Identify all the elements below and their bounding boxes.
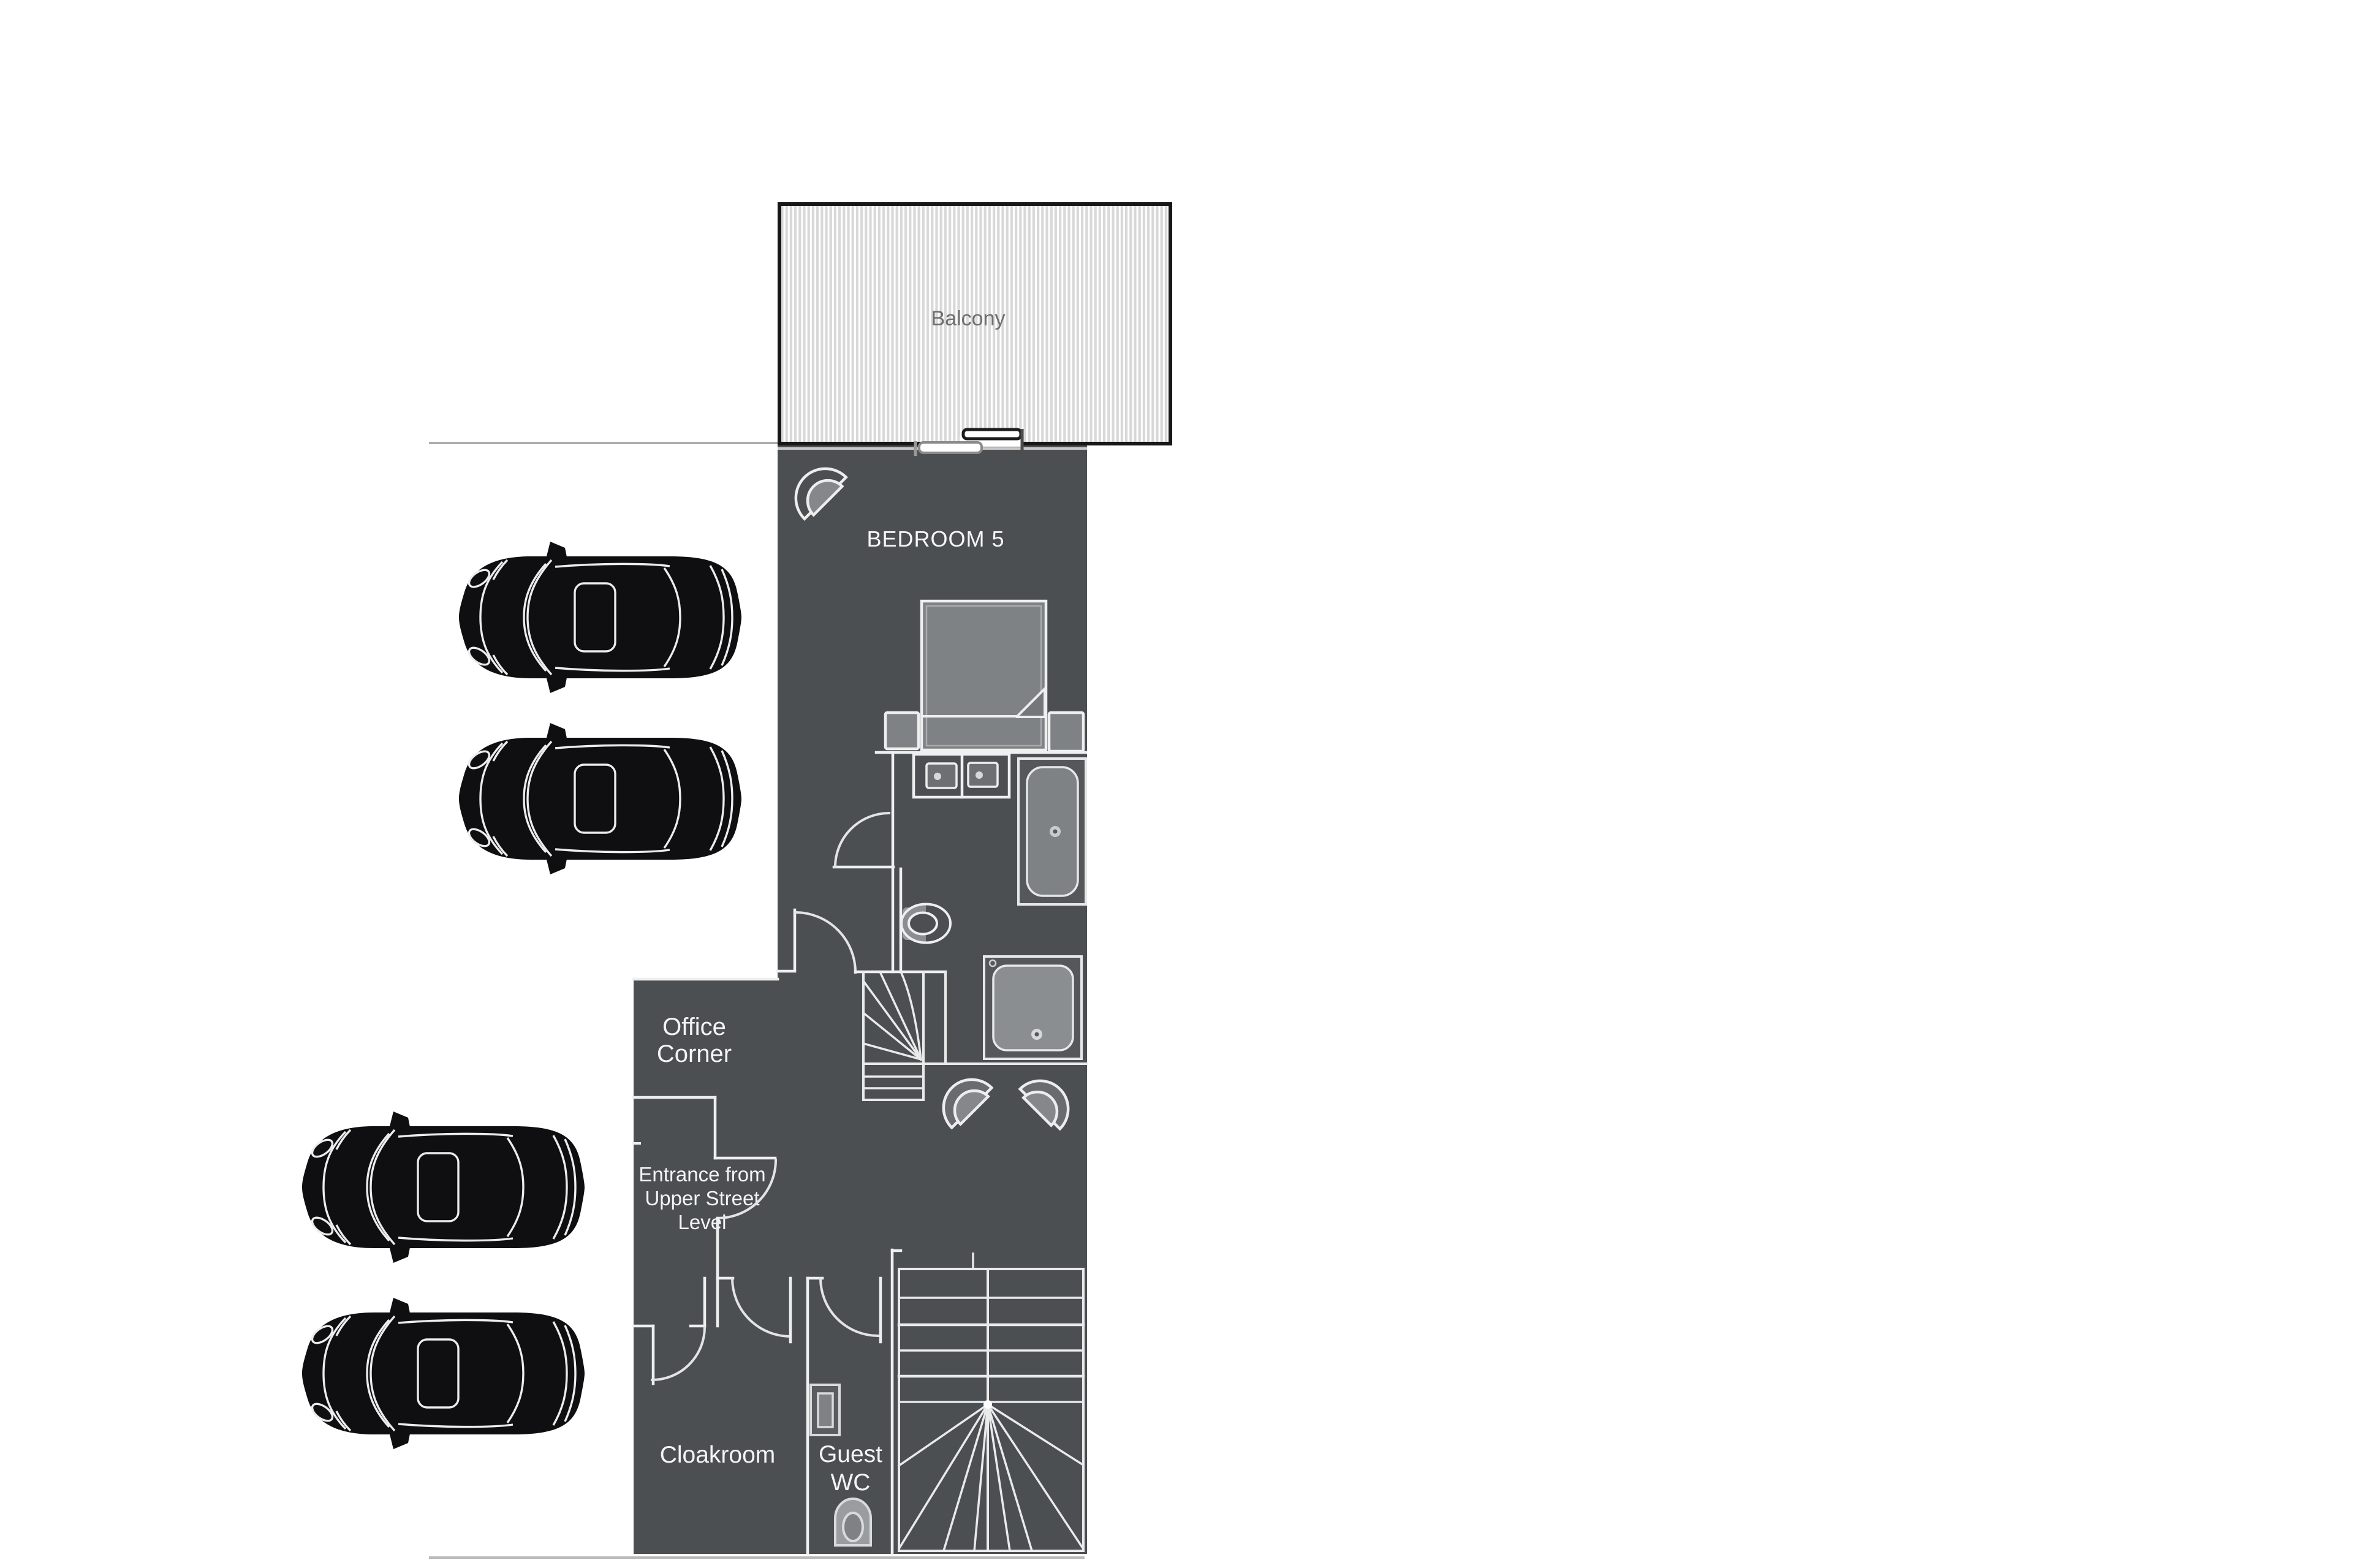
svg-text:Level: Level <box>678 1211 727 1233</box>
svg-text:Corner: Corner <box>657 1040 732 1067</box>
svg-text:WC: WC <box>831 1469 871 1496</box>
svg-text:Guest: Guest <box>819 1441 882 1468</box>
svg-text:Balcony: Balcony <box>931 307 1006 330</box>
svg-text:BEDROOM 5: BEDROOM 5 <box>866 526 1004 551</box>
svg-text:Entrance from: Entrance from <box>638 1163 765 1186</box>
svg-text:Cloakroom: Cloakroom <box>660 1442 776 1468</box>
svg-text:Office: Office <box>662 1013 726 1040</box>
svg-text:Upper Street: Upper Street <box>645 1187 759 1210</box>
